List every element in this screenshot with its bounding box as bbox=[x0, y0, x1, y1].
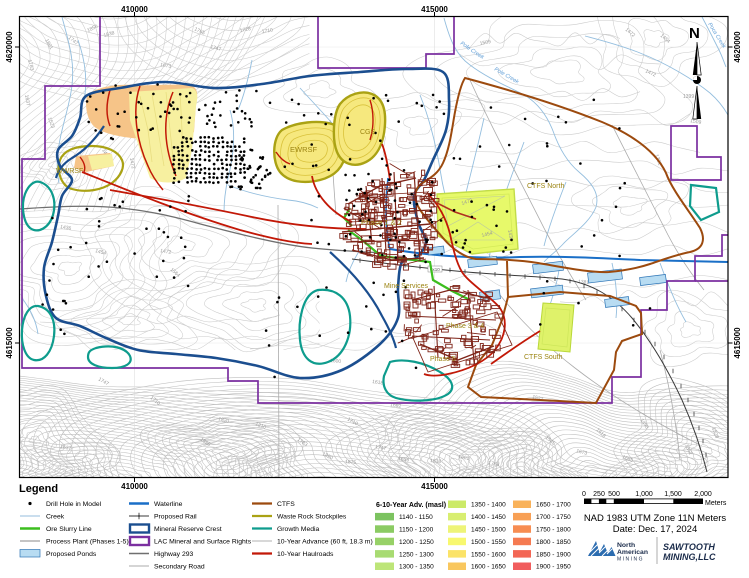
svg-text:415000: 415000 bbox=[421, 482, 448, 491]
svg-text:Proposed Rail: Proposed Rail bbox=[154, 514, 197, 521]
svg-text:Waste Rock Stockpiles: Waste Rock Stockpiles bbox=[277, 514, 347, 521]
svg-text:1400 - 1450: 1400 - 1450 bbox=[471, 514, 506, 521]
svg-text:1140 - 1150: 1140 - 1150 bbox=[399, 514, 433, 521]
svg-text:1900 - 1950: 1900 - 1950 bbox=[536, 564, 571, 571]
svg-text:2,000: 2,000 bbox=[694, 491, 712, 498]
svg-text:Proposed Ponds: Proposed Ponds bbox=[46, 551, 97, 558]
svg-text:1,000: 1,000 bbox=[635, 491, 653, 498]
svg-text:Mineral Reserve Crest: Mineral Reserve Crest bbox=[154, 526, 222, 533]
svg-text:500: 500 bbox=[608, 491, 620, 498]
svg-text:0: 0 bbox=[582, 491, 586, 498]
svg-text:NAD 1983 UTM Zone 11N Meters: NAD 1983 UTM Zone 11N Meters bbox=[584, 513, 727, 524]
svg-text:Drill Hole in Model: Drill Hole in Model bbox=[46, 501, 102, 508]
svg-text:4620000: 4620000 bbox=[5, 31, 14, 63]
svg-text:1838: 1838 bbox=[430, 458, 442, 465]
svg-text:Secondary Road: Secondary Road bbox=[154, 564, 205, 571]
svg-text:North: North bbox=[617, 542, 635, 549]
svg-text:Growth Media: Growth Media bbox=[277, 526, 320, 533]
svg-text:Process Plant (Phases 1-5): Process Plant (Phases 1-5) bbox=[46, 539, 129, 546]
svg-text:EWRSF: EWRSF bbox=[290, 145, 318, 154]
svg-text:415000: 415000 bbox=[421, 5, 448, 14]
svg-text:American: American bbox=[617, 549, 648, 556]
svg-text:Highway 293: Highway 293 bbox=[154, 551, 194, 558]
svg-text:1800 - 1850: 1800 - 1850 bbox=[536, 539, 571, 546]
svg-text:SAWTOOTH: SAWTOOTH bbox=[663, 542, 715, 552]
svg-text:1875: 1875 bbox=[345, 459, 357, 466]
svg-text:1200 - 1250: 1200 - 1250 bbox=[399, 539, 434, 546]
svg-text:1,500: 1,500 bbox=[664, 491, 682, 498]
svg-text:10-Year Advance (60 ft, 18.3 m: 10-Year Advance (60 ft, 18.3 m) bbox=[277, 539, 373, 546]
svg-text:250: 250 bbox=[593, 491, 605, 498]
svg-text:LAC Mineral and Surface Rights: LAC Mineral and Surface Rights bbox=[154, 539, 252, 546]
svg-text:1600 - 1650: 1600 - 1650 bbox=[471, 564, 506, 571]
svg-text:CGS: CGS bbox=[360, 129, 376, 136]
svg-text:CTFS: CTFS bbox=[277, 501, 295, 508]
svg-text:Waterline: Waterline bbox=[154, 501, 183, 508]
svg-text:Mine Services: Mine Services bbox=[384, 283, 428, 290]
svg-text:1450 - 1500: 1450 - 1500 bbox=[471, 527, 506, 534]
svg-text:MINING,LLC: MINING,LLC bbox=[663, 552, 716, 562]
svg-text:10-Year Haulroads: 10-Year Haulroads bbox=[277, 551, 334, 558]
svg-text:1350 - 1400: 1350 - 1400 bbox=[471, 502, 506, 509]
svg-text:MINING: MINING bbox=[617, 557, 644, 563]
svg-text:Phase 5: Phase 5 bbox=[430, 356, 456, 363]
svg-text:410000: 410000 bbox=[121, 5, 148, 14]
svg-text:Legend: Legend bbox=[19, 483, 58, 495]
svg-text:1500 - 1550: 1500 - 1550 bbox=[471, 539, 506, 546]
svg-text:Meters: Meters bbox=[705, 500, 727, 507]
svg-text:1750 - 1800: 1750 - 1800 bbox=[536, 527, 571, 534]
svg-text:WWRSF: WWRSF bbox=[56, 168, 83, 175]
svg-text:CTFS North: CTFS North bbox=[527, 183, 564, 190]
svg-text:Phase 3 & 4: Phase 3 & 4 bbox=[446, 323, 484, 330]
svg-text:Phase 1 & 2: Phase 1 & 2 bbox=[361, 218, 402, 227]
svg-text:6-10-Year Adv. (masl): 6-10-Year Adv. (masl) bbox=[376, 502, 446, 509]
svg-text:1399: 1399 bbox=[683, 94, 694, 100]
svg-text:N: N bbox=[689, 25, 700, 42]
svg-text:Date: Dec. 17, 2024: Date: Dec. 17, 2024 bbox=[613, 524, 698, 535]
svg-text:1300 - 1350: 1300 - 1350 bbox=[399, 564, 434, 571]
svg-text:Ore Slurry Line: Ore Slurry Line bbox=[46, 526, 92, 533]
svg-text:1250 - 1300: 1250 - 1300 bbox=[399, 551, 434, 558]
svg-text:4620000: 4620000 bbox=[733, 31, 742, 63]
svg-text:1150 - 1200: 1150 - 1200 bbox=[399, 527, 434, 534]
svg-text:1700 - 1750: 1700 - 1750 bbox=[536, 514, 571, 521]
svg-text:4615000: 4615000 bbox=[5, 327, 14, 359]
svg-text:1550 - 1600: 1550 - 1600 bbox=[471, 551, 506, 558]
svg-text:Creek: Creek bbox=[46, 514, 65, 521]
svg-text:CTFS South: CTFS South bbox=[524, 354, 563, 361]
svg-text:4615000: 4615000 bbox=[733, 327, 742, 359]
svg-text:1850 - 1900: 1850 - 1900 bbox=[536, 551, 571, 558]
svg-text:1650 - 1700: 1650 - 1700 bbox=[536, 502, 571, 509]
svg-text:410000: 410000 bbox=[121, 482, 148, 491]
